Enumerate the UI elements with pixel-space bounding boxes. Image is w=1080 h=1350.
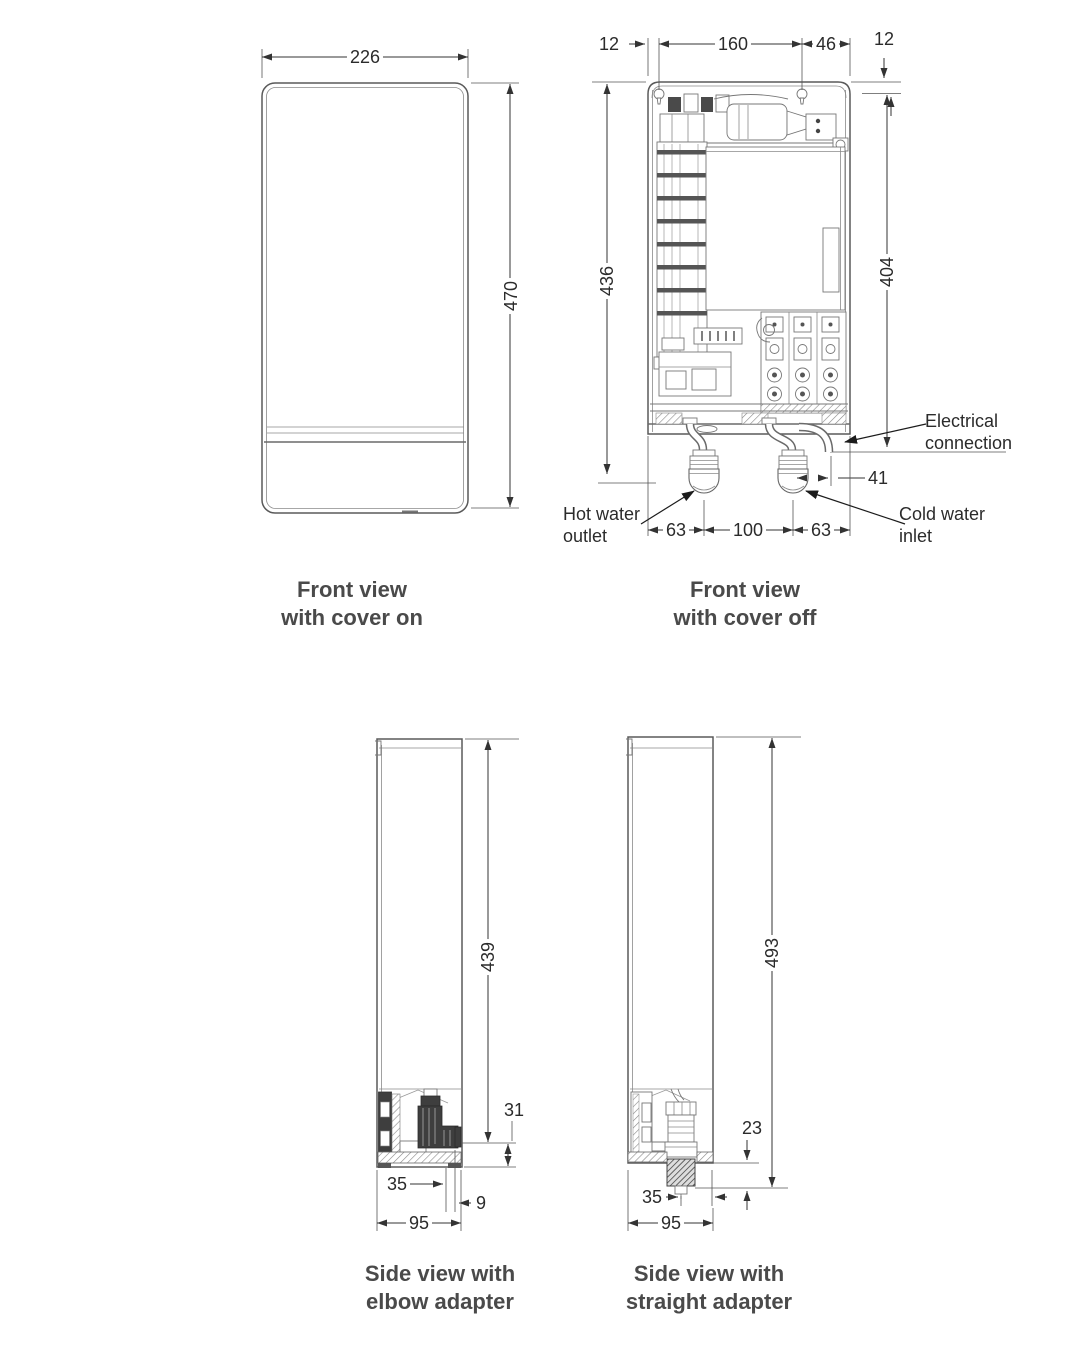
- side-elbow-drawing: [375, 739, 519, 1231]
- dim-front-height: 470: [501, 278, 521, 314]
- dim-overall-left: 436: [597, 263, 617, 299]
- dim-outlet-to-inlet: 100: [730, 520, 766, 540]
- caption-line: Front view: [222, 576, 482, 604]
- label-line: inlet: [899, 525, 985, 547]
- label-hot-water-outlet: Hot water outlet: [563, 503, 640, 547]
- dim-hole-spacing: 160: [715, 34, 751, 54]
- dim-straight-adapter-drop: 23: [739, 1118, 765, 1138]
- dimension-drawing-page: 226 470 Front view with cover on 12 160 …: [0, 0, 1080, 1350]
- caption-side-straight: Side view with straight adapter: [579, 1260, 839, 1316]
- dim-front-width: 226: [347, 47, 383, 67]
- caption-front-cover-on: Front view with cover on: [222, 576, 482, 632]
- front-cover-on-drawing: [262, 49, 519, 513]
- dim-elbow-height: 439: [478, 939, 498, 975]
- dim-overall-right: 404: [877, 254, 897, 290]
- line-art-canvas: [0, 0, 1080, 1350]
- dim-straight-height: 493: [762, 935, 782, 971]
- label-line: Electrical: [925, 410, 1012, 432]
- front-cover-off-drawing: [592, 38, 1006, 536]
- caption-line: Front view: [615, 576, 875, 604]
- dim-hole-to-edge: 46: [813, 34, 839, 54]
- label-line: connection: [925, 432, 1012, 454]
- dim-inlet-to-conduit: 41: [865, 468, 891, 488]
- dim-elbow-depth: 95: [406, 1213, 432, 1233]
- caption-front-cover-off: Front view with cover off: [615, 576, 875, 632]
- dim-straight-adapter-depth: 35: [639, 1187, 665, 1207]
- dim-inlet-to-edge: 63: [808, 520, 834, 540]
- dim-elbow-protrusion: 9: [473, 1193, 489, 1213]
- label-line: outlet: [563, 525, 640, 547]
- label-line: Hot water: [563, 503, 640, 525]
- dim-elbow-outlet-drop: 31: [501, 1100, 527, 1120]
- dim-top-to-hole: 12: [871, 29, 897, 49]
- label-cold-water-inlet: Cold water inlet: [899, 503, 985, 547]
- caption-line: Side view with: [310, 1260, 570, 1288]
- caption-line: straight adapter: [579, 1288, 839, 1316]
- caption-line: elbow adapter: [310, 1288, 570, 1316]
- label-electrical-connection: Electrical connection: [925, 410, 1012, 454]
- dim-elbow-outlet-depth: 35: [384, 1174, 410, 1194]
- side-straight-drawing: [626, 737, 801, 1231]
- dim-straight-depth: 95: [658, 1213, 684, 1233]
- caption-line: with cover off: [615, 604, 875, 632]
- caption-line: with cover on: [222, 604, 482, 632]
- caption-side-elbow: Side view with elbow adapter: [310, 1260, 570, 1316]
- caption-line: Side view with: [579, 1260, 839, 1288]
- dim-edge-to-hole: 12: [596, 34, 622, 54]
- dim-edge-to-outlet: 63: [663, 520, 689, 540]
- label-line: Cold water: [899, 503, 985, 525]
